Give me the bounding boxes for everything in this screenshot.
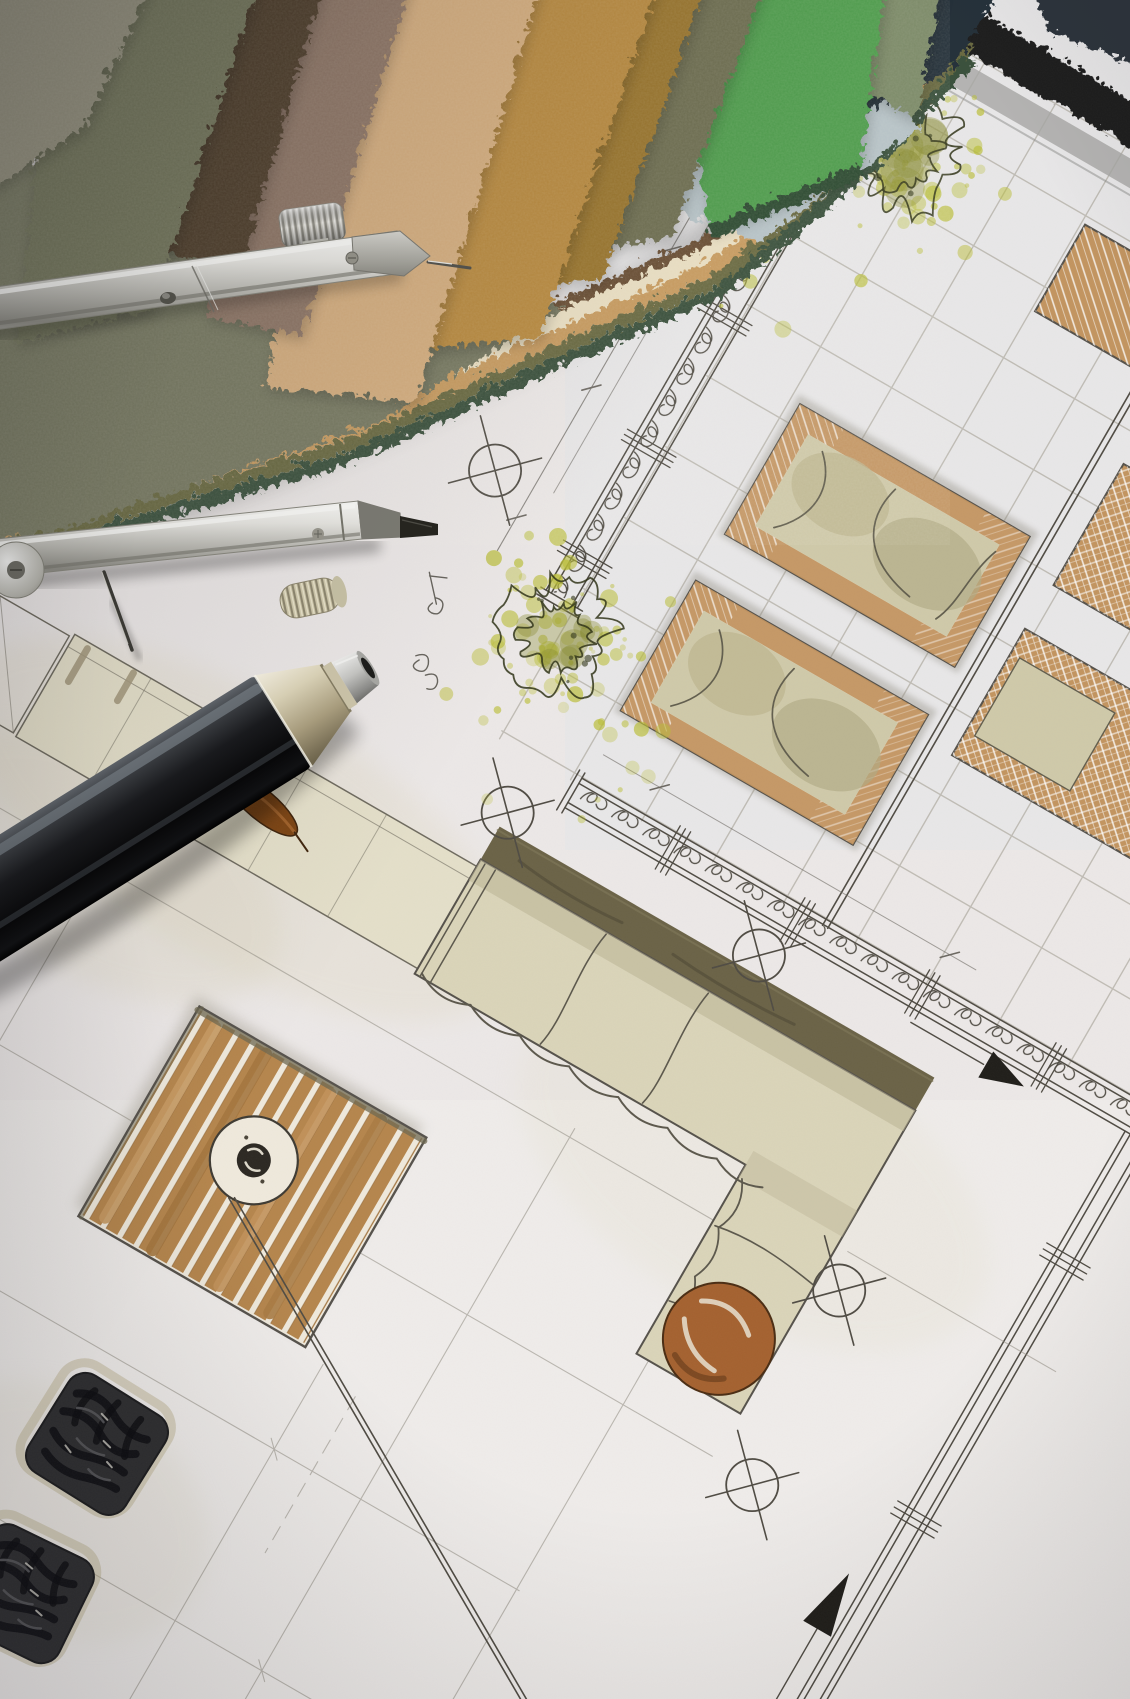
top-left-shade (0, 0, 1130, 1699)
photo-interior-design-workspace (0, 0, 1130, 1699)
workspace-photo-svg (0, 0, 1130, 1699)
